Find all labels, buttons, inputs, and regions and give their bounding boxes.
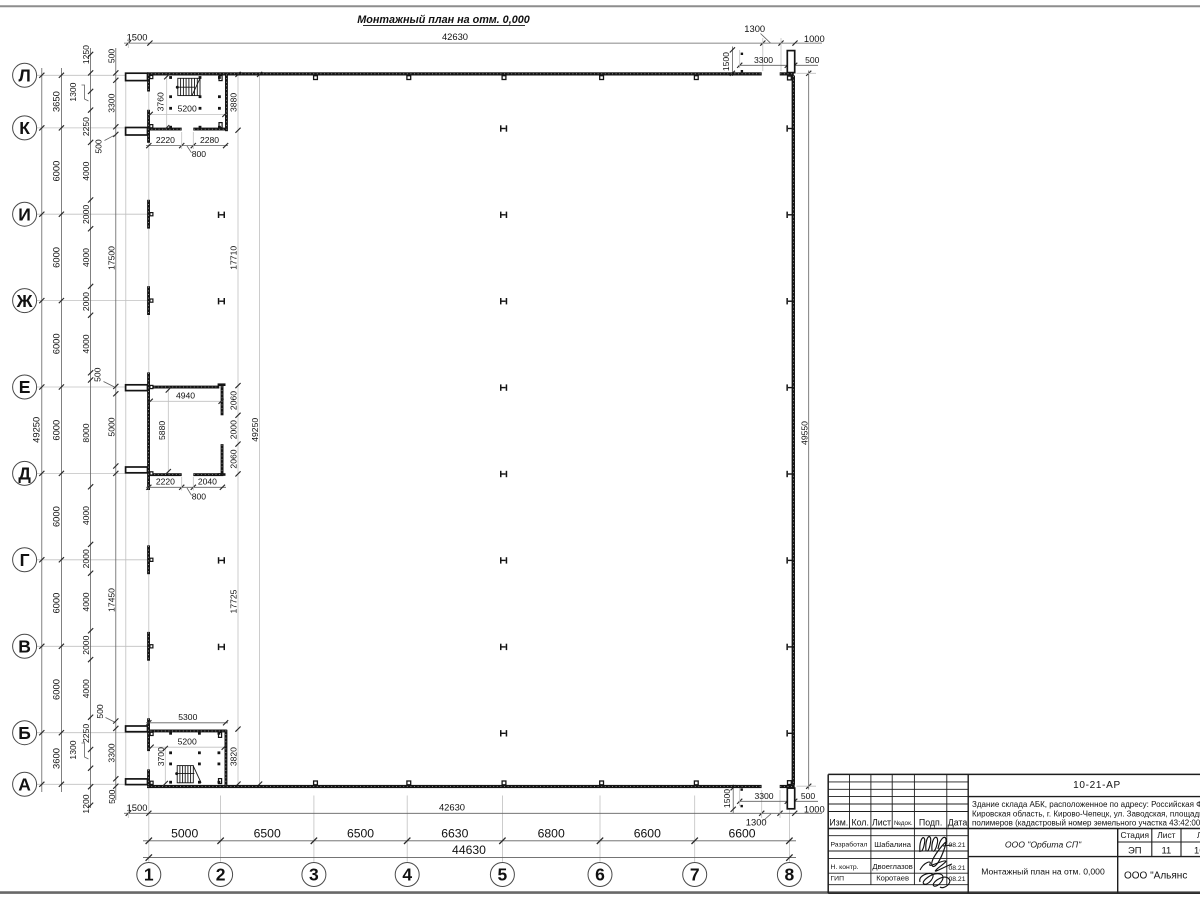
svg-text:2250: 2250 xyxy=(81,117,91,136)
svg-text:5880: 5880 xyxy=(157,421,167,440)
svg-text:7: 7 xyxy=(690,865,700,885)
svg-text:ООО "Орбита СП": ООО "Орбита СП" xyxy=(1005,840,1082,850)
svg-text:Е: Е xyxy=(19,377,31,397)
svg-text:500: 500 xyxy=(92,367,102,382)
svg-text:1300: 1300 xyxy=(744,23,765,34)
svg-text:1500: 1500 xyxy=(127,32,148,43)
svg-text:1500: 1500 xyxy=(127,802,148,813)
svg-text:1250: 1250 xyxy=(81,45,91,64)
svg-text:3600: 3600 xyxy=(51,748,62,769)
svg-text:6800: 6800 xyxy=(538,827,565,841)
svg-text:500: 500 xyxy=(107,789,117,804)
svg-text:3: 3 xyxy=(309,865,319,885)
svg-text:2250: 2250 xyxy=(81,724,91,743)
svg-text:4: 4 xyxy=(402,865,412,885)
svg-text:Подп.: Подп. xyxy=(919,817,942,827)
svg-text:2040: 2040 xyxy=(198,477,217,487)
svg-text:6000: 6000 xyxy=(51,593,62,614)
svg-text:500: 500 xyxy=(94,139,104,154)
svg-text:Коротаев: Коротаев xyxy=(876,874,909,883)
svg-text:Стадия: Стадия xyxy=(1121,830,1150,840)
svg-text:2220: 2220 xyxy=(156,135,175,145)
svg-text:800: 800 xyxy=(192,492,207,502)
svg-text:3700: 3700 xyxy=(156,747,166,766)
svg-text:И: И xyxy=(18,204,31,224)
svg-text:08.21: 08.21 xyxy=(948,865,965,872)
svg-text:Монтажный план на отм. 0,000: Монтажный план на отм. 0,000 xyxy=(357,14,529,26)
svg-text:1000: 1000 xyxy=(804,803,825,814)
svg-text:Б: Б xyxy=(18,723,31,743)
svg-text:3300: 3300 xyxy=(754,55,773,65)
svg-text:2: 2 xyxy=(216,865,226,885)
svg-text:4000: 4000 xyxy=(81,679,91,698)
svg-text:42630: 42630 xyxy=(442,31,468,42)
svg-text:1300: 1300 xyxy=(68,740,78,759)
svg-text:Лист: Лист xyxy=(1157,830,1175,840)
svg-text:Разработал: Разработал xyxy=(831,841,868,849)
svg-text:полимеров (кадастровый номер з: полимеров (кадастровый номер земельного … xyxy=(972,819,1200,828)
svg-text:3300: 3300 xyxy=(106,743,116,762)
svg-text:6000: 6000 xyxy=(51,333,62,354)
svg-text:6000: 6000 xyxy=(51,506,62,527)
svg-text:16: 16 xyxy=(1194,844,1200,855)
svg-text:Л: Л xyxy=(18,66,30,86)
svg-text:2000: 2000 xyxy=(81,635,91,654)
svg-text:Лист: Лист xyxy=(872,817,891,827)
svg-text:Кол.: Кол. xyxy=(851,817,868,827)
svg-text:08.21: 08.21 xyxy=(948,876,965,883)
svg-text:6600: 6600 xyxy=(634,827,661,841)
svg-text:49250: 49250 xyxy=(30,417,41,443)
svg-text:1200: 1200 xyxy=(81,794,91,813)
svg-text:500: 500 xyxy=(95,704,105,719)
svg-text:6500: 6500 xyxy=(347,827,374,841)
svg-text:Кировская область, г. Кирово-Ч: Кировская область, г. Кирово-Чепецк, ул.… xyxy=(972,809,1200,818)
svg-text:К: К xyxy=(19,118,30,138)
svg-text:8: 8 xyxy=(785,865,795,885)
svg-text:1: 1 xyxy=(144,865,154,885)
svg-text:2000: 2000 xyxy=(81,549,91,568)
svg-text:Г: Г xyxy=(20,550,30,570)
svg-text:3760: 3760 xyxy=(155,92,165,111)
svg-text:4000: 4000 xyxy=(81,161,91,180)
svg-text:Шабалина: Шабалина xyxy=(874,840,911,849)
svg-text:№док.: №док. xyxy=(894,820,913,827)
svg-text:6500: 6500 xyxy=(254,827,281,841)
svg-text:2000: 2000 xyxy=(81,292,91,311)
svg-text:17450: 17450 xyxy=(106,588,116,612)
svg-text:Изм.: Изм. xyxy=(829,817,848,827)
svg-text:3880: 3880 xyxy=(228,93,238,112)
svg-text:1300: 1300 xyxy=(68,82,78,101)
svg-text:5000: 5000 xyxy=(106,417,116,436)
svg-text:10-21-АР: 10-21-АР xyxy=(1073,780,1121,791)
svg-text:2220: 2220 xyxy=(156,477,175,487)
svg-text:Монтажный план на отм. 0,000: Монтажный план на отм. 0,000 xyxy=(981,867,1105,877)
svg-text:5000: 5000 xyxy=(171,827,198,841)
svg-text:11: 11 xyxy=(1162,844,1172,855)
svg-text:5200: 5200 xyxy=(178,104,197,114)
svg-text:2280: 2280 xyxy=(200,135,219,145)
svg-text:6000: 6000 xyxy=(51,247,62,268)
svg-text:Дата: Дата xyxy=(948,817,968,827)
svg-text:В: В xyxy=(18,637,31,657)
svg-text:44630: 44630 xyxy=(452,843,486,857)
svg-text:3650: 3650 xyxy=(51,91,62,112)
svg-text:8000: 8000 xyxy=(81,423,91,442)
svg-text:Д: Д xyxy=(18,464,31,484)
svg-text:ГИП: ГИП xyxy=(831,875,845,882)
svg-text:4000: 4000 xyxy=(81,248,91,267)
svg-text:500: 500 xyxy=(805,55,820,65)
svg-text:42630: 42630 xyxy=(439,802,465,813)
svg-text:800: 800 xyxy=(192,149,207,159)
svg-text:5300: 5300 xyxy=(178,712,197,722)
svg-text:6: 6 xyxy=(595,865,605,885)
svg-text:ООО "Альянс: ООО "Альянс xyxy=(1124,871,1187,882)
svg-text:2000: 2000 xyxy=(228,420,238,439)
svg-text:6000: 6000 xyxy=(51,679,62,700)
svg-text:6000: 6000 xyxy=(51,161,62,182)
svg-text:4940: 4940 xyxy=(176,391,195,401)
svg-text:2000: 2000 xyxy=(81,205,91,224)
svg-text:6000: 6000 xyxy=(51,420,62,441)
svg-text:49250: 49250 xyxy=(250,418,260,442)
svg-text:49550: 49550 xyxy=(799,421,809,445)
svg-text:17710: 17710 xyxy=(228,246,238,270)
svg-text:Н. контр.: Н. контр. xyxy=(831,864,859,871)
svg-text:Ж: Ж xyxy=(16,291,33,311)
svg-text:3300: 3300 xyxy=(754,791,773,801)
svg-text:2060: 2060 xyxy=(228,449,238,468)
svg-text:3820: 3820 xyxy=(228,747,238,766)
svg-text:17725: 17725 xyxy=(228,589,238,613)
svg-text:Двоеглазов: Двоеглазов xyxy=(872,862,912,871)
svg-text:3300: 3300 xyxy=(106,93,116,112)
svg-text:А: А xyxy=(18,775,31,795)
svg-text:2060: 2060 xyxy=(228,391,238,410)
svg-text:4000: 4000 xyxy=(81,592,91,611)
svg-text:500: 500 xyxy=(801,791,816,801)
svg-text:Здание склада АБК, расположенн: Здание склада АБК, расположенное по адре… xyxy=(972,800,1200,809)
svg-text:4000: 4000 xyxy=(81,334,91,353)
svg-text:ЭП: ЭП xyxy=(1128,844,1141,855)
svg-text:6600: 6600 xyxy=(728,827,755,841)
svg-text:1500: 1500 xyxy=(721,52,731,71)
svg-text:4000: 4000 xyxy=(81,506,91,525)
svg-text:6630: 6630 xyxy=(441,827,468,841)
svg-text:1000: 1000 xyxy=(804,33,825,44)
svg-text:5200: 5200 xyxy=(178,737,197,747)
svg-text:1500: 1500 xyxy=(722,789,732,808)
svg-text:500: 500 xyxy=(106,49,116,64)
svg-text:5: 5 xyxy=(498,865,508,885)
svg-text:17500: 17500 xyxy=(106,246,116,270)
